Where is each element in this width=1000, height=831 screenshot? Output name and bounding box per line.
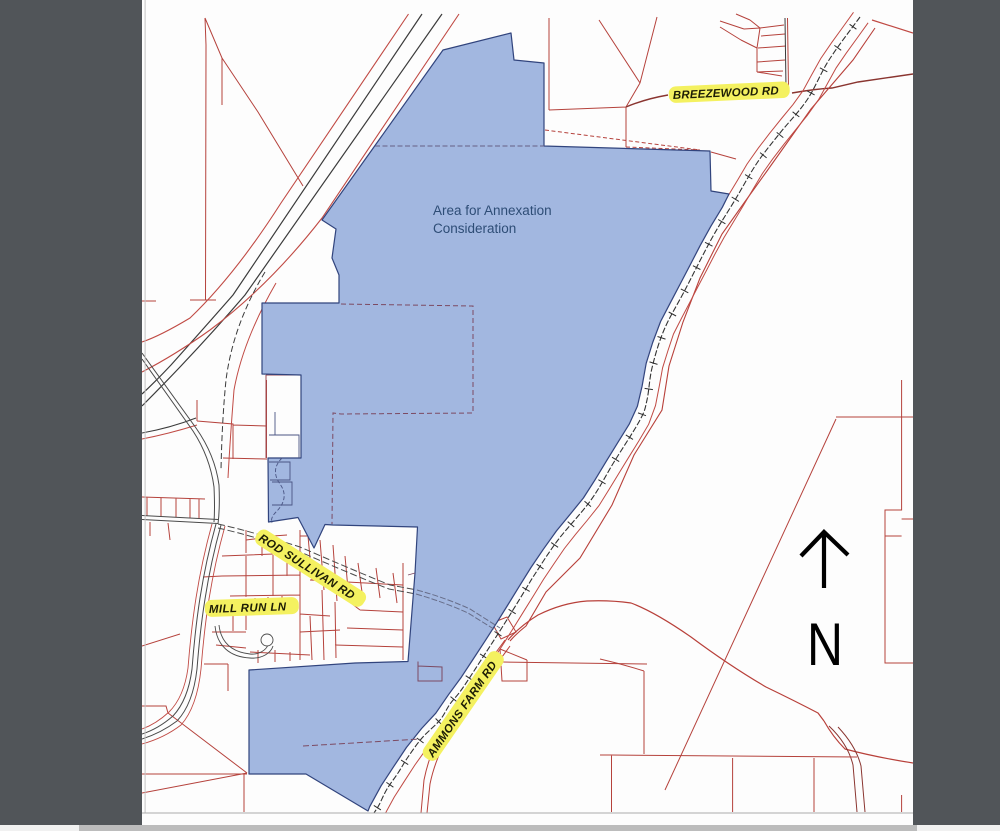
svg-text:N: N — [807, 611, 843, 678]
svg-text:Area for Annexation: Area for Annexation — [433, 203, 552, 218]
svg-text:Consideration: Consideration — [433, 221, 516, 236]
